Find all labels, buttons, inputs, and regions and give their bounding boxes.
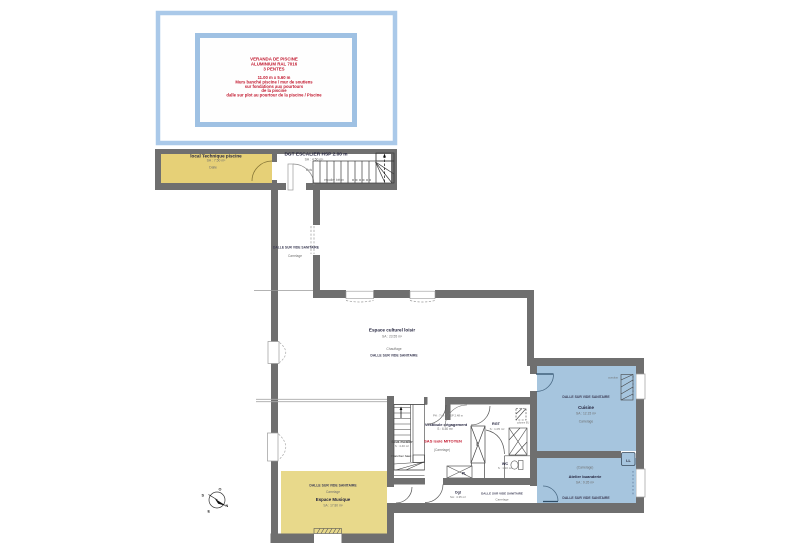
svg-text:Espace culturel loisir: Espace culturel loisir xyxy=(369,328,415,333)
svg-text:cumulus: cumulus xyxy=(608,376,618,380)
svg-text:Chauffage: Chauffage xyxy=(386,347,401,351)
svg-text:SA : 9.35 m²: SA : 9.35 m² xyxy=(576,481,595,485)
svg-text:Atelier buanderie: Atelier buanderie xyxy=(569,474,602,479)
svg-text:S : 4.40 m²: S : 4.40 m² xyxy=(395,444,409,448)
svg-text:N: N xyxy=(226,504,229,508)
svg-text:DALLE SUR VIDE SANITAIRE: DALLE SUR VIDE SANITAIRE xyxy=(481,492,523,496)
svg-text:Carrelage: Carrelage xyxy=(495,498,509,502)
svg-text:Plancher haut: Plancher haut xyxy=(391,454,411,458)
svg-text:(Carrelage): (Carrelage) xyxy=(434,448,450,452)
svg-text:Cuisine: Cuisine xyxy=(578,405,594,410)
svg-text:Espace Musique: Espace Musique xyxy=(316,497,351,502)
svg-text:colonne EU: colonne EU xyxy=(517,422,530,425)
svg-text:PL: PL xyxy=(462,472,466,476)
svg-text:RGT: RGT xyxy=(492,422,501,426)
svg-text:DALLE SUR VIDE SANITAIRE: DALLE SUR VIDE SANITAIRE xyxy=(562,395,610,399)
svg-text:O: O xyxy=(219,488,222,492)
svg-text:DALLE SUR VIDE SANITAIRE: DALLE SUR VIDE SANITAIRE xyxy=(562,496,610,500)
svg-text:(Carrelage): (Carrelage) xyxy=(577,466,594,470)
svg-text:Dalle: Dalle xyxy=(209,166,217,170)
svg-text:Carrelage: Carrelage xyxy=(579,420,594,424)
svg-text:SAS isolé MITOYEN: SAS isolé MITOYEN xyxy=(424,439,462,444)
svg-text:Carrelage: Carrelage xyxy=(288,254,302,258)
svg-text:Carrelage: Carrelage xyxy=(326,490,340,494)
svg-text:S : 1.05 m²: S : 1.05 m² xyxy=(490,427,505,431)
svg-text:DALLE SUR VIDE SANITAIRE: DALLE SUR VIDE SANITAIRE xyxy=(273,246,320,250)
svg-text:SA : 4.35 m²: SA : 4.35 m² xyxy=(450,495,466,499)
svg-text:Dgt: Dgt xyxy=(455,491,462,495)
svg-text:SA : 17.80 m²: SA : 17.80 m² xyxy=(323,504,342,508)
svg-text:SA : 23.55 m²: SA : 23.55 m² xyxy=(382,335,403,339)
svg-text:dalle sur plot au pourtour de: dalle sur plot au pourtour de la piscine… xyxy=(226,93,322,98)
svg-text:escalier béton: escalier béton xyxy=(324,178,344,182)
svg-text:S : 1.10 m²: S : 1.10 m² xyxy=(498,466,512,470)
svg-text:DALLE SUR VIDE SANITAIRE: DALLE SUR VIDE SANITAIRE xyxy=(370,354,418,358)
svg-text:SA : 12.15 m²: SA : 12.15 m² xyxy=(576,412,597,416)
svg-text:3 PENTES: 3 PENTES xyxy=(263,67,284,72)
svg-text:DALLE SUR VIDE SANITAIRE: DALLE SUR VIDE SANITAIRE xyxy=(309,484,357,488)
svg-text:SA : 7.50 m²: SA : 7.50 m² xyxy=(207,159,227,163)
svg-text:S : 6.50 m²: S : 6.50 m² xyxy=(437,427,453,431)
